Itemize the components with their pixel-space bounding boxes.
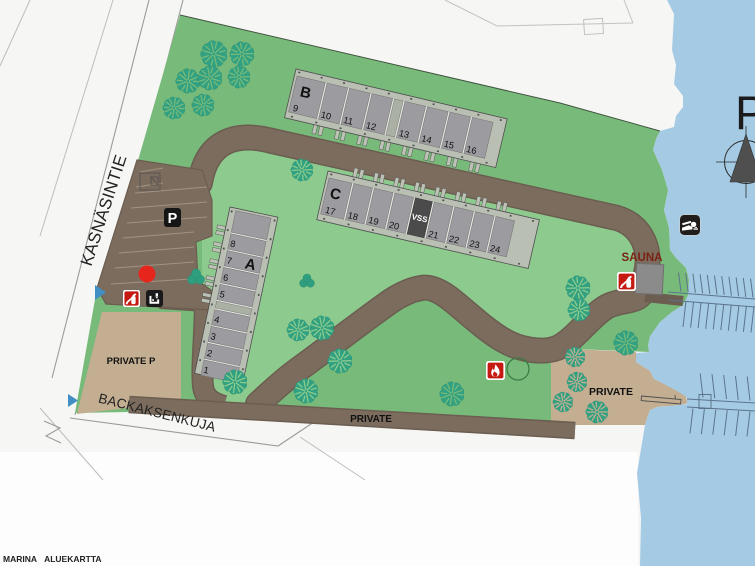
svg-text:PRIVATE: PRIVATE bbox=[589, 386, 633, 398]
svg-text:PRIVATE: PRIVATE bbox=[350, 414, 392, 425]
svg-text:P: P bbox=[735, 86, 755, 139]
svg-text:SAUNA: SAUNA bbox=[622, 252, 663, 264]
svg-text:PRIVATE P: PRIVATE P bbox=[107, 356, 156, 367]
svg-text:P: P bbox=[168, 211, 178, 227]
svg-text:MARINA ALUEKARTTA: MARINA ALUEKARTTA bbox=[3, 554, 102, 564]
